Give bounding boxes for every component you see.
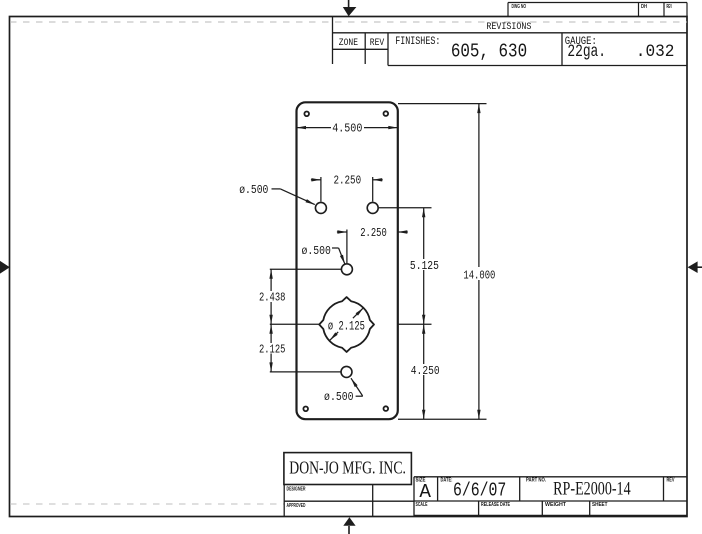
svg-text:APPROVED: APPROVED <box>287 503 306 509</box>
svg-text:2.125: 2.125 <box>259 342 286 356</box>
svg-text:ø 2.125: ø 2.125 <box>328 318 365 333</box>
svg-text:SIZE: SIZE <box>416 478 427 484</box>
svg-text:SHEET: SHEET <box>592 502 608 508</box>
svg-text:DWG NO: DWG NO <box>512 4 527 10</box>
svg-text:4.250: 4.250 <box>411 364 440 378</box>
svg-text:DESIGNER: DESIGNER <box>287 486 306 492</box>
svg-text:RELEASE DATE: RELEASE DATE <box>481 502 511 508</box>
svg-text:2.438: 2.438 <box>259 291 286 305</box>
svg-text:ø.500: ø.500 <box>302 244 331 258</box>
svg-text:5.125: 5.125 <box>410 259 439 273</box>
svg-text:REV: REV <box>667 4 673 10</box>
svg-text:RP-E2000-14: RP-E2000-14 <box>553 479 631 500</box>
svg-text:REV: REV <box>370 37 384 48</box>
svg-text:2.250: 2.250 <box>333 174 361 188</box>
svg-text:ZONE: ZONE <box>339 37 358 48</box>
svg-text:22ga.: 22ga. <box>567 42 606 62</box>
svg-text:A: A <box>419 481 431 503</box>
svg-text:4.500: 4.500 <box>332 122 362 136</box>
svg-text:SCALE: SCALE <box>416 502 428 508</box>
svg-text:DH: DH <box>641 4 647 10</box>
svg-text:.032: .032 <box>636 42 675 62</box>
svg-text:ø.500: ø.500 <box>239 183 268 197</box>
svg-text:DATE:: DATE: <box>441 478 453 484</box>
svg-text:WEIGHT: WEIGHT <box>545 502 566 508</box>
svg-text:PART NO.: PART NO. <box>526 478 547 484</box>
svg-text:605, 630: 605, 630 <box>451 40 527 62</box>
svg-text:FINISHES:: FINISHES: <box>395 36 440 48</box>
svg-text:DON-JO MFG. INC.: DON-JO MFG. INC. <box>289 457 406 477</box>
svg-text:6/6/07: 6/6/07 <box>453 480 506 502</box>
svg-text:14.000: 14.000 <box>463 268 495 282</box>
svg-text:2.250: 2.250 <box>360 226 387 240</box>
svg-text:REVISIONS: REVISIONS <box>486 21 531 33</box>
svg-text:ø.500: ø.500 <box>324 390 354 404</box>
svg-text:REV: REV <box>667 478 676 484</box>
